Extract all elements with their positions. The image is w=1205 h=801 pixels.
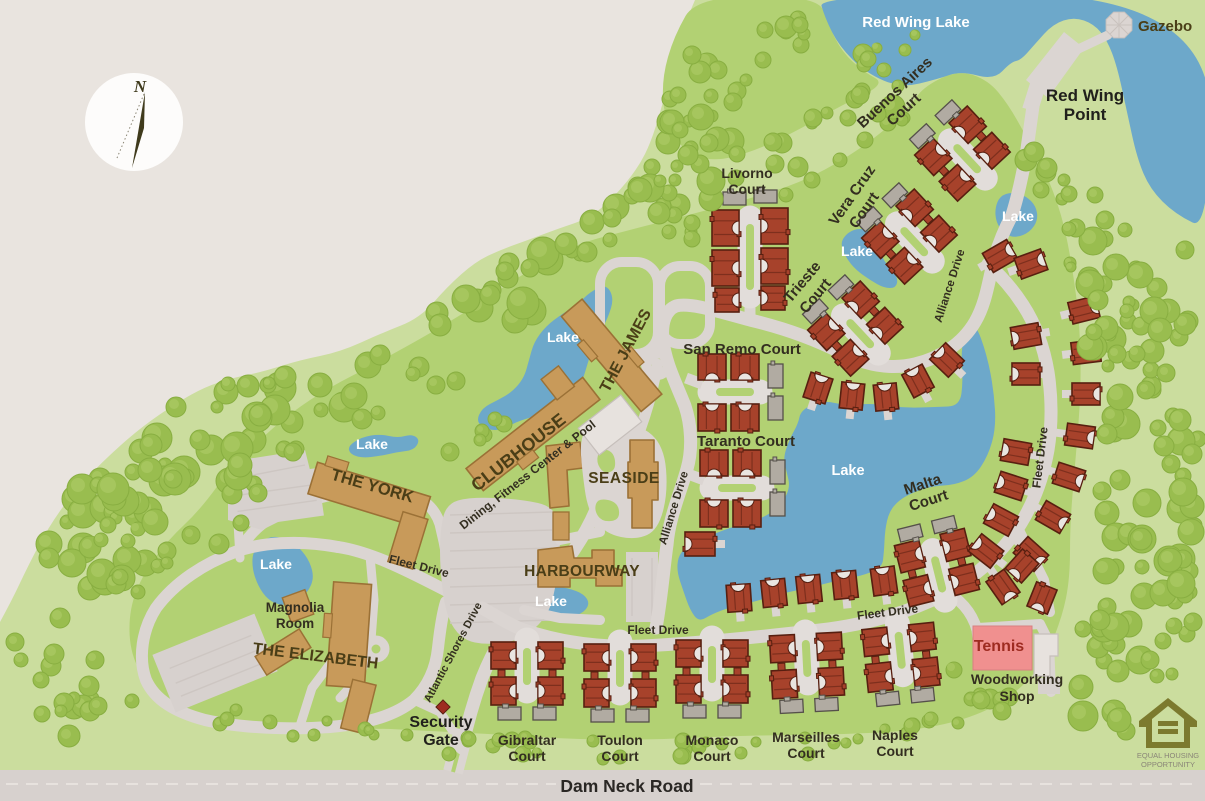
svg-text:Gibraltar: Gibraltar: [498, 732, 557, 748]
svg-text:EQUAL HOUSING: EQUAL HOUSING: [1137, 751, 1199, 760]
svg-text:Marseilles: Marseilles: [772, 729, 840, 745]
svg-text:Lake: Lake: [356, 436, 388, 452]
svg-text:Red Wing Lake: Red Wing Lake: [862, 14, 969, 31]
svg-text:Lake: Lake: [535, 593, 567, 609]
svg-text:Court: Court: [787, 745, 825, 761]
svg-text:Court: Court: [601, 748, 639, 764]
svg-text:Lake: Lake: [547, 329, 579, 345]
svg-text:Lake: Lake: [831, 463, 864, 479]
svg-text:Lake: Lake: [841, 243, 873, 259]
svg-text:Room: Room: [276, 616, 314, 631]
svg-text:Shop: Shop: [1000, 688, 1035, 704]
svg-text:Gate: Gate: [423, 732, 459, 749]
svg-text:Gazebo: Gazebo: [1138, 18, 1192, 35]
svg-text:Tennis: Tennis: [974, 638, 1024, 655]
svg-text:Lake: Lake: [1002, 208, 1034, 224]
svg-text:San Remo Court: San Remo Court: [683, 341, 801, 358]
svg-text:Toulon: Toulon: [597, 732, 643, 748]
svg-text:Red Wing: Red Wing: [1046, 86, 1124, 105]
svg-text:Naples: Naples: [872, 727, 918, 743]
svg-text:OPPORTUNITY: OPPORTUNITY: [1141, 760, 1195, 769]
svg-text:Dam Neck Road: Dam Neck Road: [560, 776, 693, 796]
svg-text:Court: Court: [693, 748, 731, 764]
svg-text:HARBOURWAY: HARBOURWAY: [524, 563, 640, 580]
svg-text:Monaco: Monaco: [686, 732, 739, 748]
svg-text:Court: Court: [876, 743, 914, 759]
svg-text:Point: Point: [1064, 105, 1107, 124]
svg-text:Fleet Drive: Fleet Drive: [627, 623, 689, 637]
svg-text:Lake: Lake: [260, 556, 292, 572]
svg-text:SEASIDE: SEASIDE: [588, 470, 660, 487]
svg-text:N: N: [133, 77, 147, 96]
svg-text:Court: Court: [508, 748, 546, 764]
svg-text:Magnolia: Magnolia: [266, 600, 325, 615]
svg-text:Livorno: Livorno: [721, 165, 772, 181]
svg-text:Security: Security: [409, 714, 472, 731]
svg-text:Court: Court: [728, 181, 766, 197]
svg-text:Taranto Court: Taranto Court: [697, 433, 795, 450]
svg-text:Woodworking: Woodworking: [971, 671, 1063, 687]
